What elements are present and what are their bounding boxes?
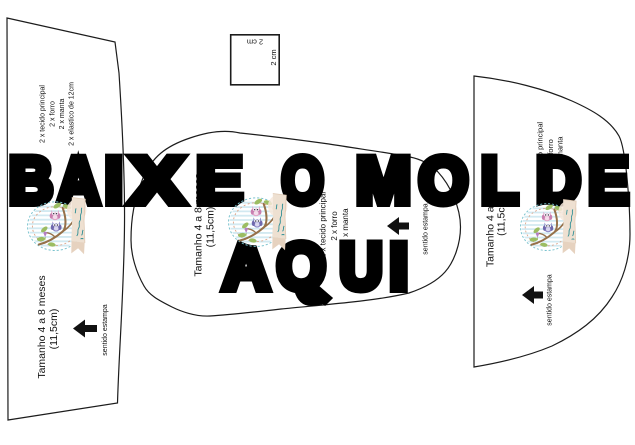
svg-text:E: E [588,144,629,218]
svg-text:U: U [339,230,382,303]
svg-text:sentido estampa: sentido estampa [547,274,554,325]
svg-text:I: I [389,230,408,304]
svg-text:2 x elastico de 12cm: 2 x elastico de 12cm [69,82,76,146]
svg-text:2 x forro: 2 x forro [330,211,339,241]
svg-text:L: L [481,144,518,218]
svg-text:O: O [282,143,324,217]
svg-text:(11,5cm): (11,5cm) [48,309,60,350]
svg-text:2 cm: 2 cm [269,49,278,65]
svg-text:I: I [105,143,123,217]
svg-text:Tamanho 4 a 8 meses: Tamanho 4 a 8 meses [36,275,48,378]
svg-text:sentido estampa: sentido estampa [102,304,109,355]
svg-text:2 cm: 2 cm [247,38,263,47]
svg-text:2 x manta: 2 x manta [59,99,66,130]
svg-text:2 x tecido principal: 2 x tecido principal [40,85,47,143]
svg-text:E: E [196,144,243,218]
svg-text:O: O [419,143,469,217]
svg-text:M: M [356,144,411,218]
svg-text:2 x forro: 2 x forro [50,101,57,127]
svg-text:X: X [130,143,184,217]
